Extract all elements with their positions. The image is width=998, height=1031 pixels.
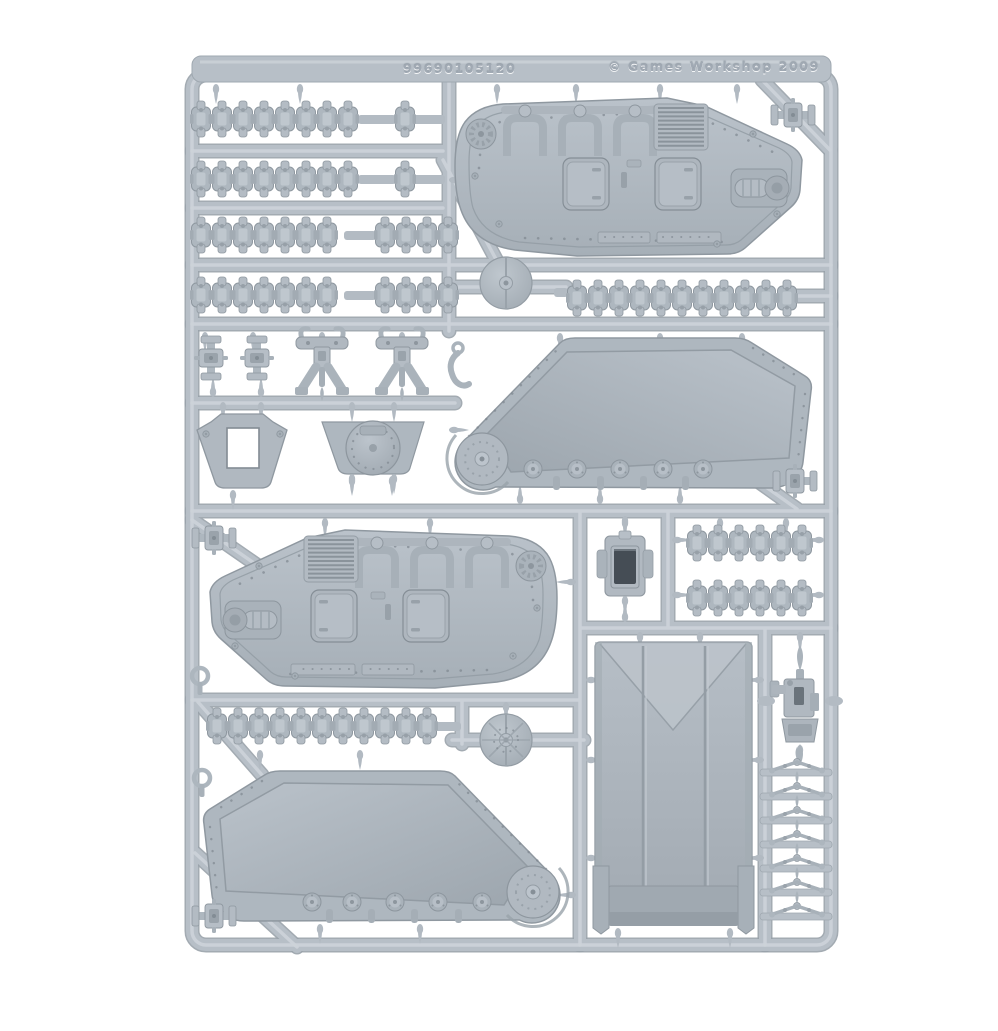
dome-hatch: [322, 402, 424, 494]
track-strip-11: [566, 280, 798, 316]
embossed-copyright: © Games Workshop 2009: [608, 59, 820, 74]
track-strip-4: [374, 277, 459, 313]
sprue-photo: 99690105120 © Games Workshop 2009: [0, 0, 998, 1031]
hull-panel-middle-left: [210, 530, 557, 688]
hub-disc-spoked: [480, 714, 532, 766]
track-strip-6: [686, 580, 813, 616]
track-guard-bottom-left: [204, 771, 568, 927]
track-link-single: [394, 101, 416, 137]
track-strip-6: [686, 525, 813, 561]
track-strip-7: [190, 277, 338, 313]
hitch-plate: [197, 402, 287, 488]
track-link-single: [394, 161, 416, 197]
track-guard-right: [447, 338, 811, 494]
lamp-bracket: [375, 329, 429, 401]
lamp-bracket: [295, 329, 349, 401]
assault-ramp: [593, 642, 754, 934]
vision-block: [597, 518, 653, 616]
ramp-hinge-flap: [593, 866, 609, 934]
track-strip-11: [206, 708, 438, 744]
hull-panel-top-right: [455, 98, 802, 256]
stowage-hook: [451, 343, 469, 386]
track-strip-8: [190, 161, 359, 197]
sprue-graphic: [0, 0, 998, 1031]
embossed-part-code: 99690105120: [403, 61, 516, 76]
track-strip-8: [190, 101, 359, 137]
track-strip-4: [374, 217, 459, 253]
hub-disc: [480, 257, 532, 309]
pipe-clamp: [240, 336, 274, 380]
ramp-hinge-flap: [738, 866, 754, 934]
track-strip-7: [190, 217, 338, 253]
